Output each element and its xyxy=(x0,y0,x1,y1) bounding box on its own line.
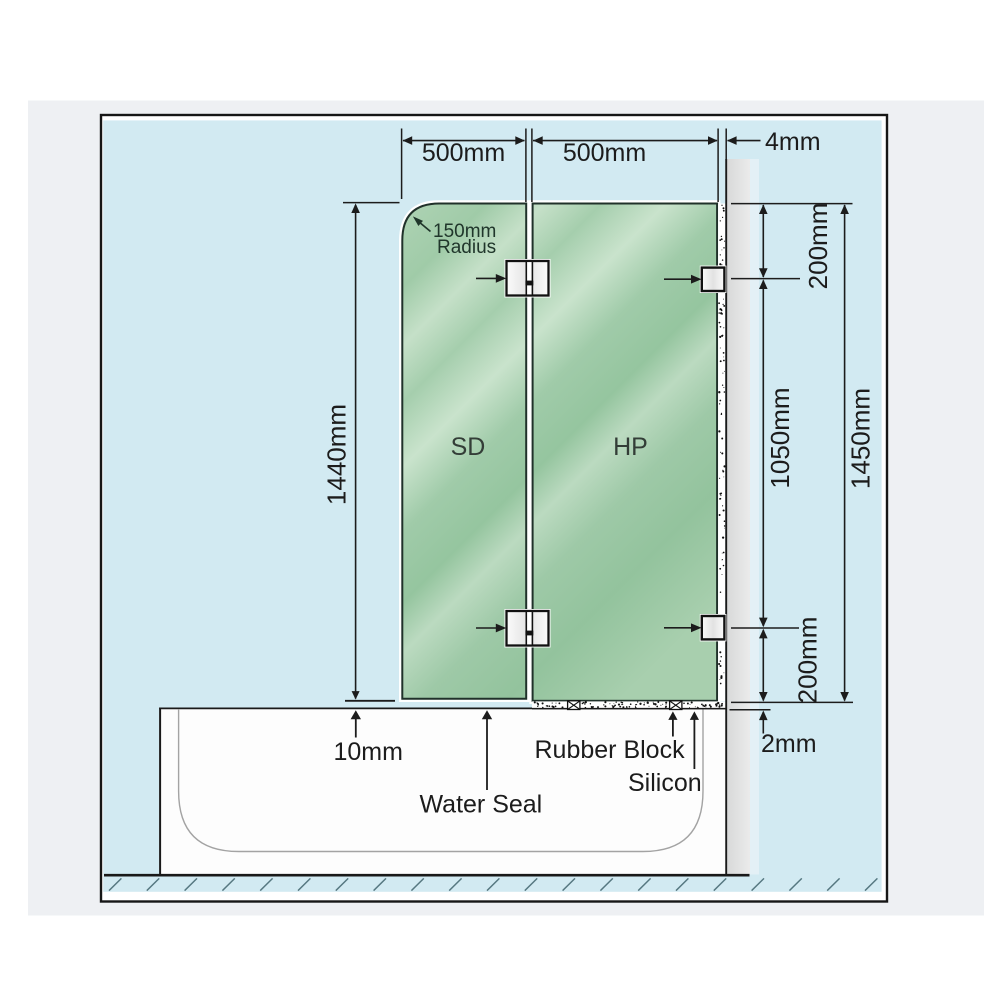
svg-text:Radius: Radius xyxy=(437,237,496,258)
svg-text:4mm: 4mm xyxy=(765,128,821,156)
svg-text:500mm: 500mm xyxy=(563,139,646,167)
svg-text:Water Seal: Water Seal xyxy=(420,790,543,818)
svg-text:200mm: 200mm xyxy=(793,617,823,704)
svg-text:1450mm: 1450mm xyxy=(846,388,876,489)
svg-text:Rubber Block: Rubber Block xyxy=(535,736,686,764)
svg-text:200mm: 200mm xyxy=(803,203,833,290)
svg-text:1050mm: 1050mm xyxy=(765,387,795,488)
svg-text:HP: HP xyxy=(613,433,648,461)
svg-text:10mm: 10mm xyxy=(334,738,403,766)
svg-text:2mm: 2mm xyxy=(761,730,817,758)
svg-text:1440mm: 1440mm xyxy=(322,404,352,505)
svg-text:500mm: 500mm xyxy=(422,139,505,167)
svg-text:Silicon: Silicon xyxy=(628,769,702,797)
svg-text:SD: SD xyxy=(451,433,486,461)
